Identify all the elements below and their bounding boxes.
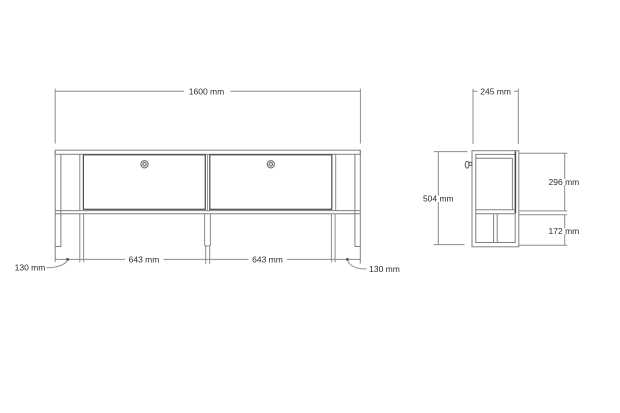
- svg-text:245 mm: 245 mm: [480, 86, 511, 96]
- svg-text:130 mm: 130 mm: [15, 263, 46, 273]
- svg-text:296 mm: 296 mm: [549, 177, 580, 187]
- svg-text:643 mm: 643 mm: [252, 255, 283, 265]
- svg-text:504 mm: 504 mm: [423, 194, 454, 204]
- svg-text:130 mm: 130 mm: [369, 264, 400, 274]
- svg-text:643 mm: 643 mm: [129, 255, 160, 265]
- svg-text:1600 mm: 1600 mm: [189, 86, 224, 96]
- svg-text:172 mm: 172 mm: [549, 226, 580, 236]
